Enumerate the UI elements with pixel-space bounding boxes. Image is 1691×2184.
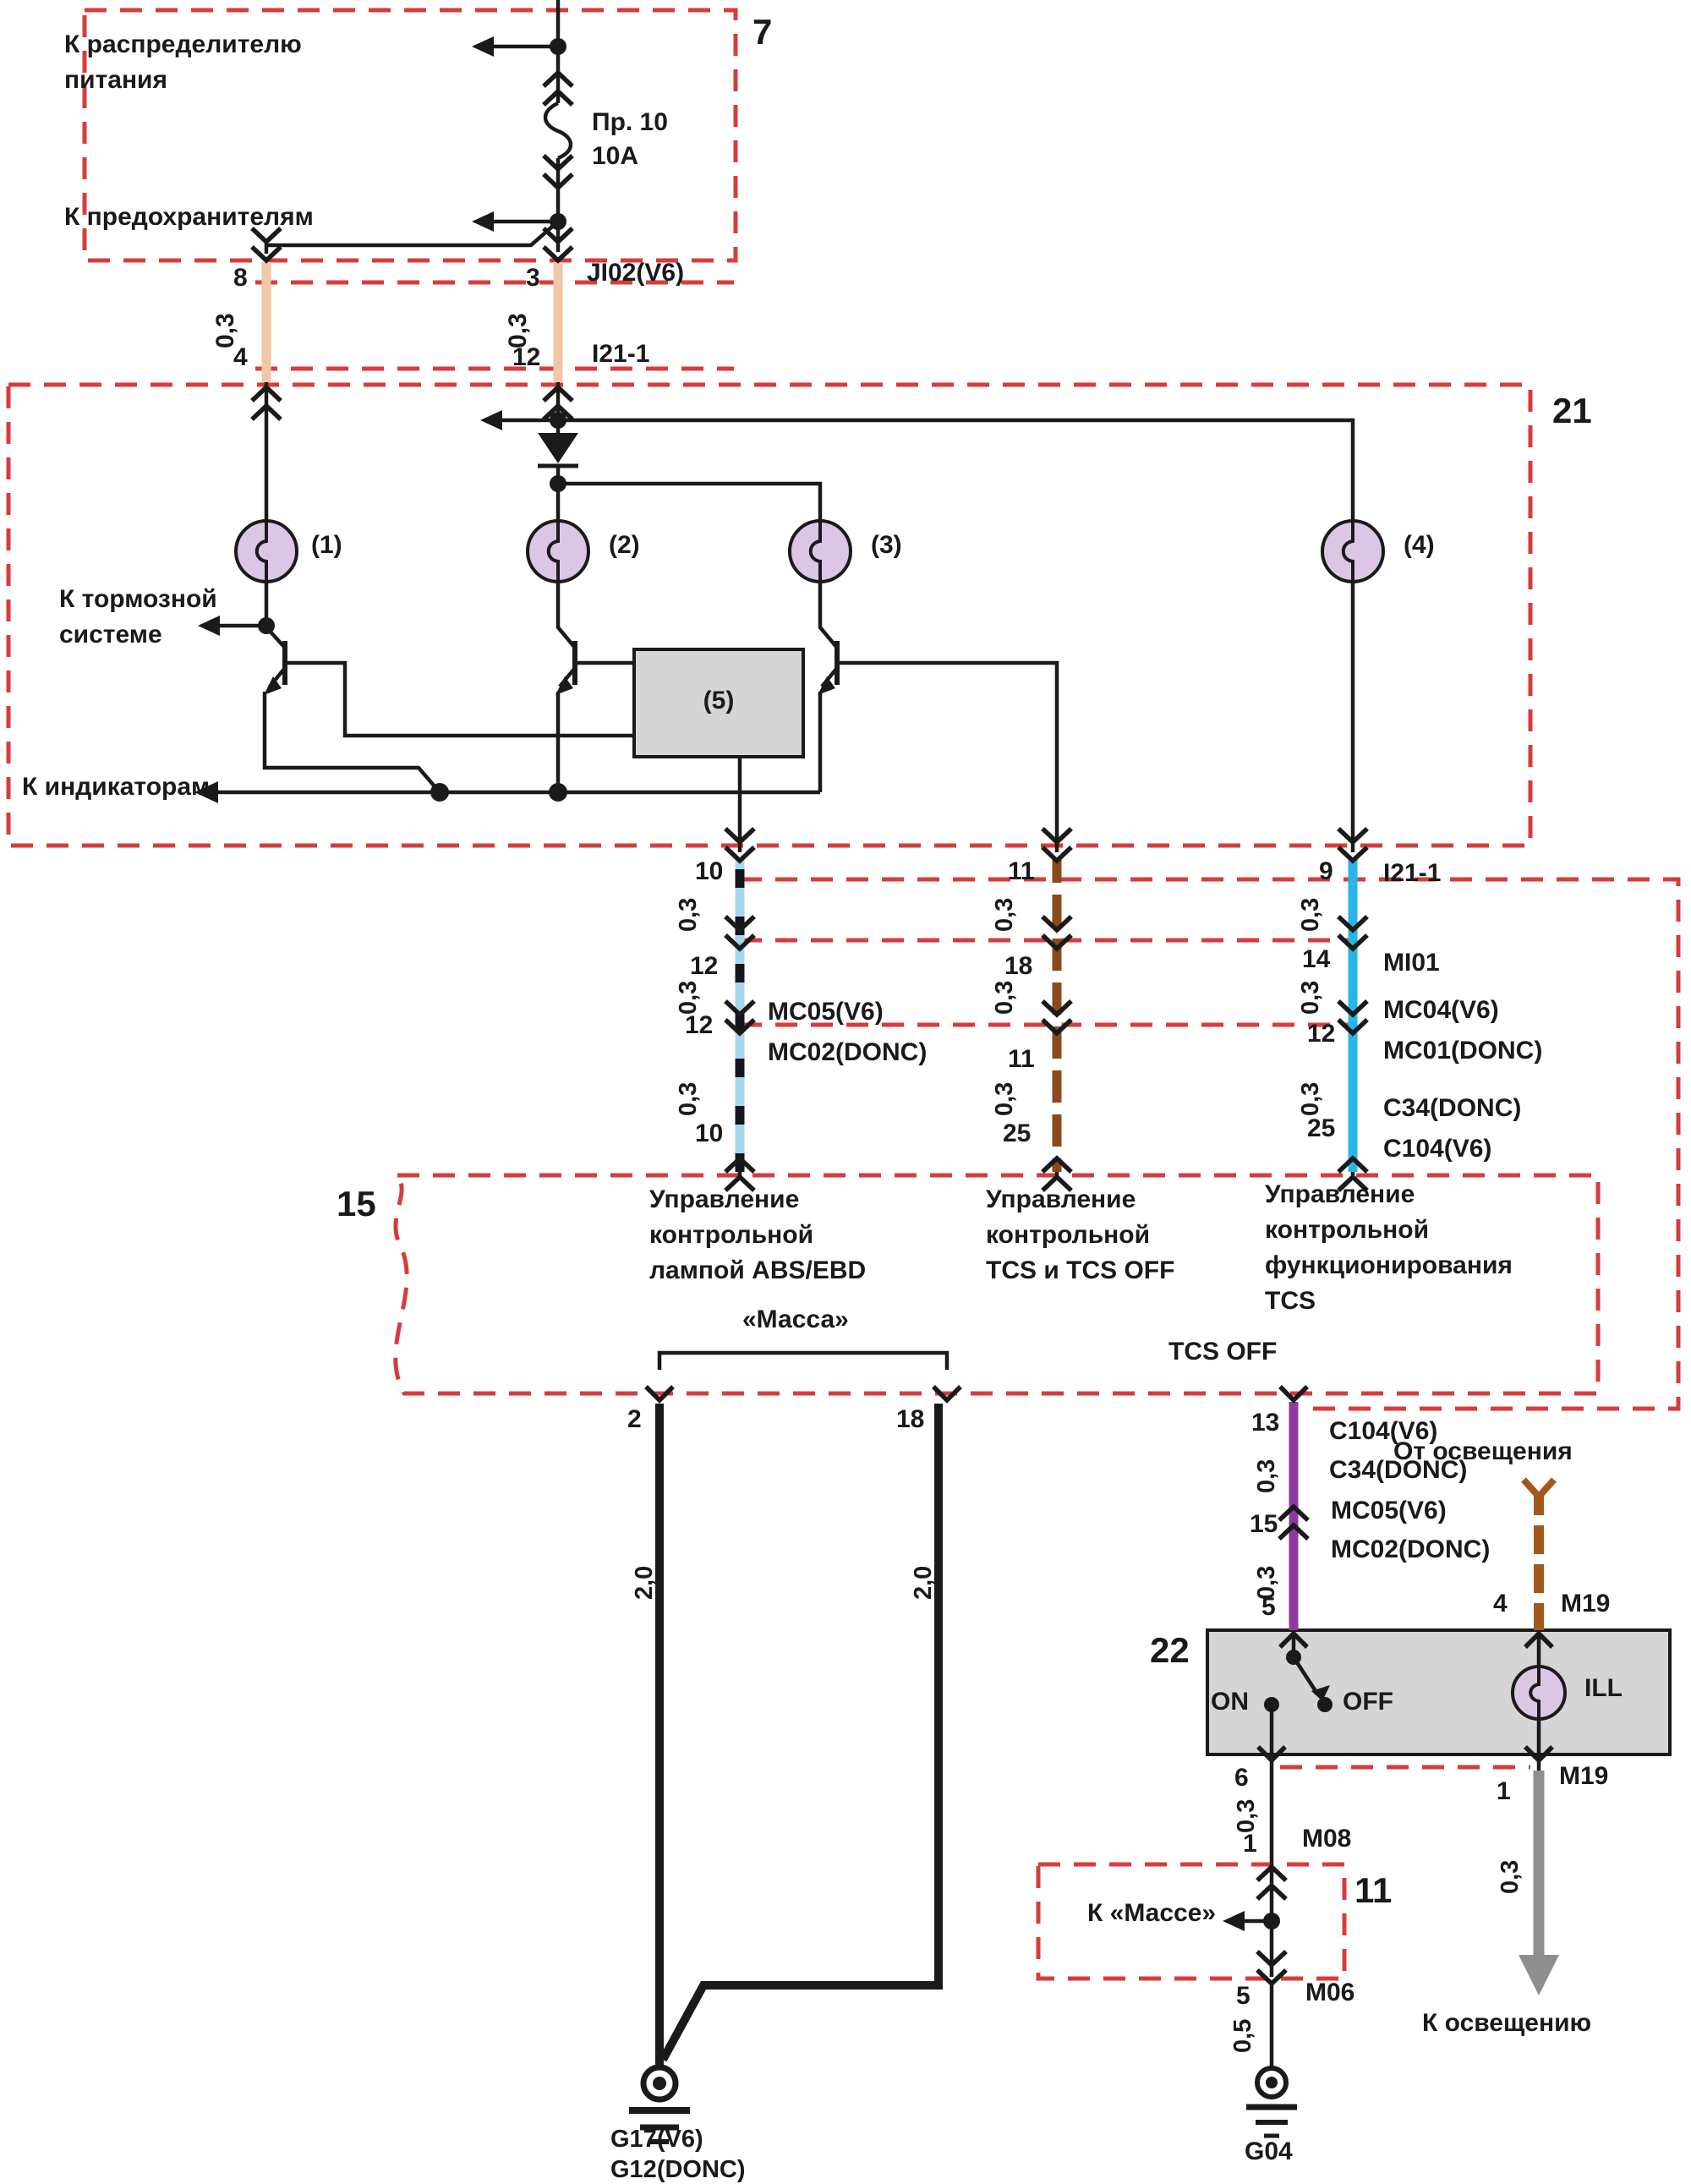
block21-number: 21 — [1552, 391, 1592, 431]
pin-2-label: 2 — [627, 1405, 642, 1434]
switch-off-label: OFF — [1343, 1688, 1393, 1716]
diode — [538, 433, 578, 463]
module5-label: (5) — [634, 687, 803, 715]
to-fuses-label: К предохранителям — [64, 203, 314, 232]
h2-pin-3: 11 — [1008, 1045, 1035, 1074]
block11-number: 11 — [1354, 1870, 1392, 1911]
to-massa-label: К «Массе» — [1087, 1899, 1216, 1928]
lamp-3 — [790, 521, 851, 582]
ground-symbol-g04 — [1246, 2068, 1297, 2136]
h2-pin-2: 18 — [1004, 952, 1032, 981]
pin-4-m19-label: 4 — [1493, 1590, 1508, 1618]
to-brake-label-1: К тормозной — [59, 585, 217, 614]
h2-gauge-3: 0,3 — [991, 1082, 1019, 1116]
to-brake-label-2: системе — [59, 621, 162, 649]
to-indicators-label: К индикаторам — [22, 773, 210, 802]
lamp1-label: (1) — [311, 531, 342, 560]
g04-gauge: 0,5 — [1229, 2019, 1257, 2053]
sig3-line3: функционирования — [1265, 1251, 1513, 1280]
pin-12: 12 — [512, 343, 540, 372]
tcs-off-label: TCS OFF — [1168, 1338, 1277, 1366]
sig3-line4: TCS — [1265, 1287, 1316, 1316]
sig3-line1: Управление — [1265, 1180, 1415, 1209]
pin-4: 4 — [233, 343, 248, 372]
h3-pin-3: 12 — [1307, 1020, 1335, 1048]
h3-gauge-3: 0,3 — [1297, 1082, 1325, 1116]
conn-m06-label: M06 — [1305, 1979, 1354, 2007]
conn-mc05b-label: MC05(V6) — [1331, 1497, 1447, 1525]
lamp4-label: (4) — [1404, 531, 1435, 560]
sig1-line1: Управление — [649, 1185, 799, 1214]
massa-label: «Масса» — [742, 1305, 849, 1334]
tcs-gauge-1: 0,3 — [1253, 1459, 1281, 1493]
sig1-line2: контрольной — [649, 1221, 813, 1250]
conn-m19-bottom: M19 — [1559, 1762, 1608, 1791]
diagram-lines — [0, 0, 1691, 2184]
ground-wires — [659, 1404, 939, 2067]
h3-pin-2: 14 — [1302, 945, 1330, 974]
h3-conn-mc04: MC04(V6) — [1383, 996, 1499, 1025]
pin-15-label: 15 — [1250, 1510, 1278, 1539]
h1-pin-3: 12 — [685, 1011, 713, 1040]
massa-bracket — [659, 1353, 947, 1370]
h1-pin-2: 12 — [690, 952, 718, 981]
sig3-line2: контрольной — [1265, 1216, 1429, 1245]
illum-in-arrow — [1524, 1480, 1554, 1497]
to-illumination-label: К освещению — [1422, 2009, 1591, 2038]
h2-pin-top: 11 — [1008, 857, 1035, 886]
h3-conn-c104: C104(V6) — [1383, 1135, 1491, 1163]
pin-1-m08-label: 1 — [1243, 1830, 1257, 1858]
h2-gauge-1: 0,3 — [991, 898, 1019, 932]
h1-conn-mc02: MC02(DONC) — [768, 1038, 927, 1067]
wiring-diagram: 7 К распределителю питания Пр. 10 10А К … — [0, 0, 1691, 2184]
from-illumination-label: От освещения — [1393, 1437, 1573, 1466]
pin-5-m06-label: 5 — [1236, 1982, 1250, 2011]
fuse-symbol — [545, 103, 571, 158]
h3-gauge-2: 0,3 — [1297, 981, 1325, 1015]
m08-gauge: 0,3 — [1233, 1799, 1261, 1833]
lamp-1 — [236, 521, 297, 582]
h1-pin-bottom: 10 — [695, 1119, 723, 1148]
connector-ji02: JI02(V6) — [587, 259, 684, 287]
fuse-rating: 10А — [592, 142, 638, 171]
gray-arrowhead — [1519, 1955, 1559, 1995]
h3-gauge-1: 0,3 — [1297, 898, 1325, 932]
fuse-name: Пр. 10 — [592, 108, 668, 137]
h3-conn-i21-1: I21-1 — [1383, 859, 1441, 888]
h3-conn-mc01: MC01(DONC) — [1383, 1037, 1542, 1065]
block15-number: 15 — [337, 1184, 376, 1224]
to-distributor-label-1: К распределителю — [64, 30, 302, 59]
block7-number: 7 — [752, 12, 772, 52]
pin-3: 3 — [526, 264, 540, 293]
conn-m08-label: M08 — [1302, 1825, 1351, 1853]
circuit-lines — [201, 0, 1539, 2066]
ground-g04-label: G04 — [1245, 2137, 1293, 2166]
pin-6-label: 6 — [1234, 1764, 1249, 1793]
ground-g17: G17(V6) — [610, 2126, 703, 2154]
switch-on-label: ON — [1211, 1688, 1249, 1716]
illout-gauge: 0,3 — [1497, 1860, 1524, 1894]
h1-gauge-1: 0,3 — [675, 898, 703, 932]
sig2-line2: контрольной — [986, 1221, 1150, 1250]
lamp-2 — [528, 521, 588, 582]
pin-18-label: 18 — [896, 1405, 924, 1434]
gauge-20-right: 2,0 — [910, 1566, 938, 1600]
h3-pin-top: 9 — [1319, 857, 1333, 886]
pin-8: 8 — [233, 264, 248, 293]
h2-gauge-2: 0,3 — [991, 981, 1019, 1015]
pin-13-label: 13 — [1251, 1409, 1279, 1437]
connector-i21-1-top: I21-1 — [592, 340, 649, 369]
h1-pin-top: 10 — [695, 857, 723, 886]
block22-number: 22 — [1150, 1630, 1190, 1671]
ground-g12: G12(DONC) — [610, 2156, 746, 2184]
lamp3-label: (3) — [871, 531, 902, 560]
gauge-20-left: 2,0 — [631, 1566, 659, 1600]
conn-mc02b-label: MC02(DONC) — [1331, 1535, 1490, 1564]
sig2-line1: Управление — [986, 1185, 1136, 1214]
sig2-line3: TCS и TCS OFF — [986, 1256, 1174, 1285]
h1-gauge-3: 0,3 — [675, 1082, 703, 1116]
h3-conn-c34: C34(DONC) — [1383, 1094, 1521, 1123]
h3-pin-bottom: 25 — [1307, 1114, 1335, 1143]
pin-1-m19-label: 1 — [1497, 1777, 1511, 1806]
lamp2-label: (2) — [609, 531, 640, 560]
ill-label: ILL — [1584, 1674, 1623, 1703]
h1-gauge-2: 0,3 — [675, 981, 703, 1015]
conn-m19-top: M19 — [1561, 1590, 1610, 1618]
lamp-4 — [1322, 521, 1383, 582]
sig1-line3: лампой ABS/EBD — [649, 1256, 866, 1285]
transistor-1 — [265, 627, 634, 792]
to-distributor-label-2: питания — [64, 66, 167, 95]
pin-5-label: 5 — [1261, 1593, 1276, 1622]
lamp-ill — [1513, 1667, 1565, 1719]
h1-conn-mc05: MC05(V6) — [768, 998, 884, 1026]
transistor-3 — [820, 582, 1057, 852]
h2-pin-bottom: 25 — [1003, 1119, 1031, 1148]
h3-conn-mi01: MI01 — [1383, 949, 1440, 977]
